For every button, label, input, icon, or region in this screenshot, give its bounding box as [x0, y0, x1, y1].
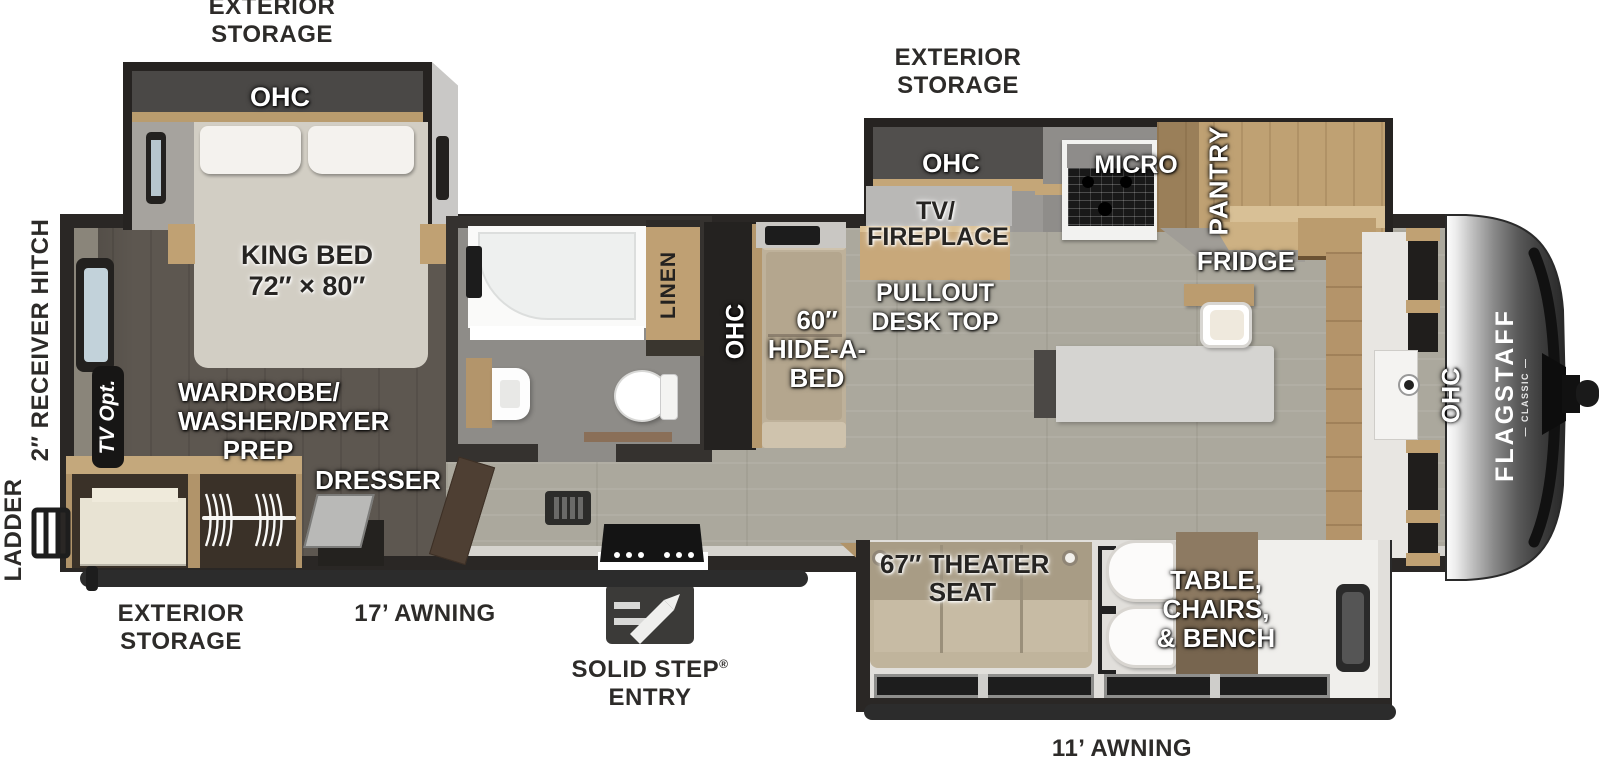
svg-text:— CLASSIC —: — CLASSIC —	[1520, 357, 1530, 436]
svg-text:FLAGSTAFF: FLAGSTAFF	[1491, 308, 1519, 482]
